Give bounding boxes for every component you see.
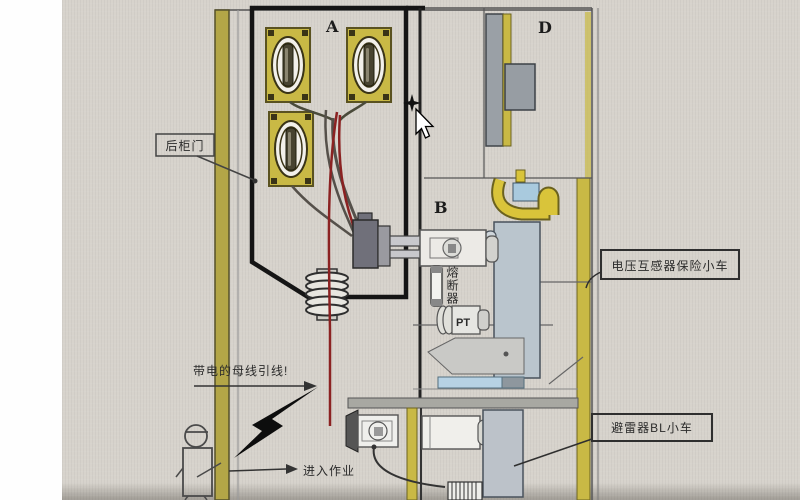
compartment-d: [424, 8, 592, 178]
switchgear-cross-section-diagram: 熔断器 PT: [0, 0, 800, 500]
live-busbar-text: 带电的母线引线!: [193, 363, 288, 378]
horizontal-divider: [348, 377, 578, 408]
fuse-label: 熔断器: [445, 265, 459, 305]
support-insulator: [306, 269, 348, 320]
bushing-top-right: [347, 28, 391, 102]
breaker-trolley: [353, 213, 498, 268]
live-busbar-warning: 带电的母线引线!: [193, 363, 317, 391]
arrow-right-icon: [286, 464, 298, 474]
coil-element: [448, 482, 482, 500]
rear-door-wall: [215, 10, 229, 500]
lightning-bolt-icon: [234, 387, 318, 458]
arrow-right-icon: [304, 381, 317, 391]
pt-trolley-label: 电压互感器保险小车: [611, 258, 728, 273]
busbar-blue-patch: [513, 183, 539, 201]
pt-label: PT: [456, 317, 470, 329]
pt-platform: [428, 338, 524, 374]
pt-trolley-callout: 电压互感器保险小车: [586, 250, 739, 288]
right-wall-strip: [577, 178, 590, 500]
rear-door-callout: 后柜门: [156, 134, 258, 184]
arrester-trolley-label: 避雷器BL小车: [611, 420, 693, 435]
bushing-top-left: [266, 28, 310, 102]
arrester-trolley-callout: 避雷器BL小车: [514, 414, 712, 466]
compartment-a-label: A: [325, 17, 339, 36]
bushing-lower-left: [269, 112, 313, 186]
enter-work-annotation: 进入作业: [229, 464, 355, 478]
compartment-b-label: B: [434, 198, 448, 217]
bottom-gray-panel: [483, 410, 523, 497]
fuse-unit: 熔断器: [431, 265, 459, 306]
enter-work-label: 进入作业: [303, 464, 355, 478]
arrester-trolley-assembly: [346, 408, 523, 500]
screen-photo: 熔断器 PT: [0, 0, 800, 500]
rear-door-label: 后柜门: [165, 138, 204, 153]
compartment-d-label: D: [538, 18, 552, 37]
